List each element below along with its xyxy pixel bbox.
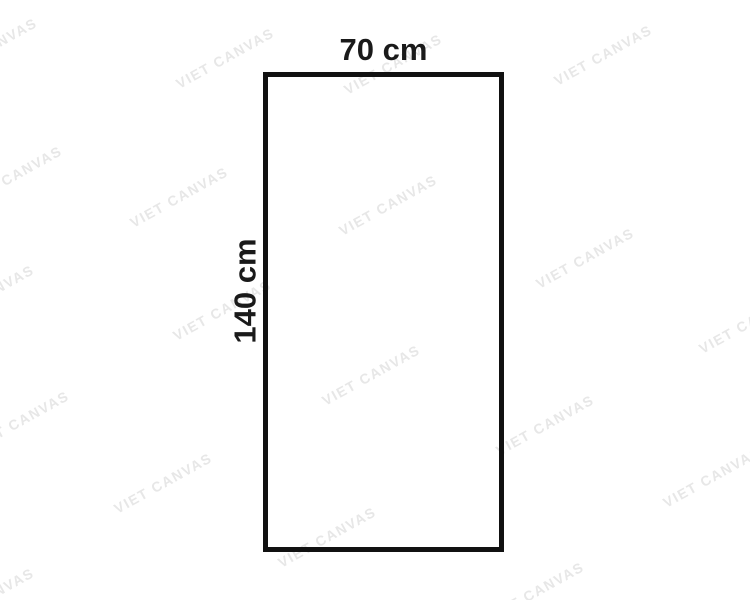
height-dimension-label: 140 cm — [230, 238, 261, 343]
watermark-text: VIET CANVAS — [0, 387, 72, 454]
watermark-text: VIET CANVAS — [0, 142, 65, 209]
watermark-text: VIET CANVAS — [696, 289, 750, 356]
watermark-text: VIET CANVAS — [493, 391, 597, 458]
watermark-text: VIET CANVAS — [533, 224, 637, 291]
diagram-canvas: VIET CANVASVIET CANVASVIET CANVASVIET CA… — [0, 0, 750, 600]
watermark-text: VIET CANVAS — [111, 449, 215, 516]
watermark-text: VIET CANVAS — [660, 443, 750, 510]
watermark-text: VIET CANVAS — [127, 163, 231, 230]
watermark-text: VIET CANVAS — [483, 558, 587, 600]
width-dimension-label: 70 cm — [263, 34, 504, 65]
watermark-text: VIET CANVAS — [551, 21, 655, 88]
rectangle-shape — [263, 72, 504, 552]
watermark-text: VIET CANVAS — [173, 24, 277, 91]
watermark-text: VIET CANVAS — [0, 261, 37, 328]
watermark-text: VIET CANVAS — [0, 564, 37, 600]
watermark-text: VIET CANVAS — [0, 14, 40, 81]
